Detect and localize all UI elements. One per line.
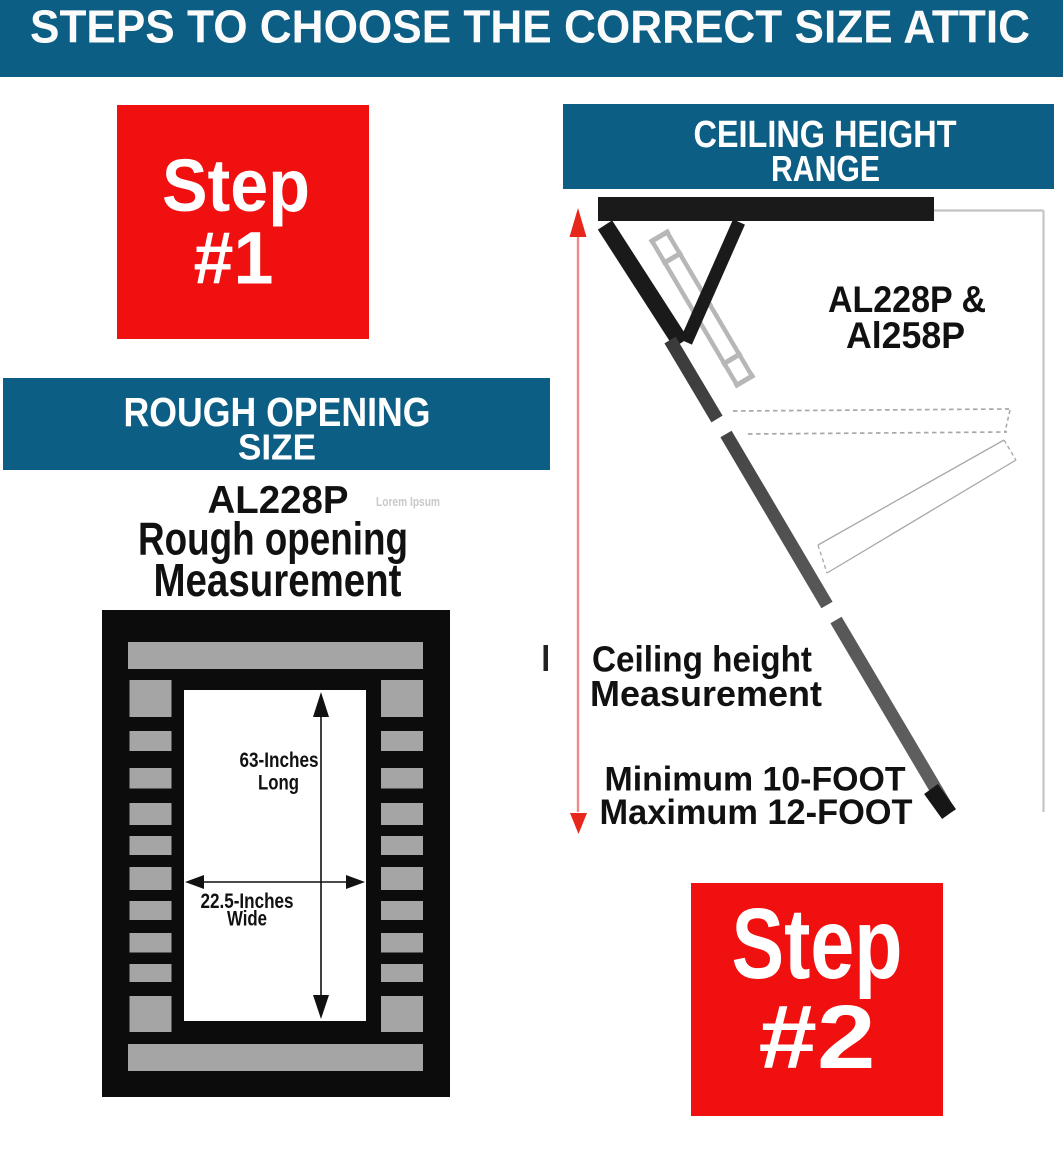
svg-text:RANGE: RANGE bbox=[771, 148, 880, 189]
svg-text:AL228P &: AL228P & bbox=[828, 279, 986, 320]
svg-text:SIZE: SIZE bbox=[238, 427, 316, 468]
svg-text:Step: Step bbox=[162, 144, 310, 227]
svg-text:Long: Long bbox=[258, 772, 299, 795]
svg-text:Wide: Wide bbox=[227, 908, 267, 931]
svg-text:Al258P: Al258P bbox=[846, 315, 965, 356]
svg-text:Measurement: Measurement bbox=[154, 554, 402, 606]
svg-text:Measurement: Measurement bbox=[590, 673, 822, 714]
svg-text:63-Inches: 63-Inches bbox=[240, 749, 319, 772]
svg-text:Lorem Ipsum: Lorem Ipsum bbox=[376, 494, 440, 509]
svg-text:Maximum 12-FOOT: Maximum 12-FOOT bbox=[600, 793, 913, 832]
svg-text:#1: #1 bbox=[194, 217, 274, 300]
svg-text:Step: Step bbox=[732, 888, 903, 1000]
svg-text:STEPS TO CHOOSE THE CORRECT SI: STEPS TO CHOOSE THE CORRECT SIZE ATTIC bbox=[30, 1, 1030, 53]
svg-text:#2: #2 bbox=[759, 988, 876, 1088]
